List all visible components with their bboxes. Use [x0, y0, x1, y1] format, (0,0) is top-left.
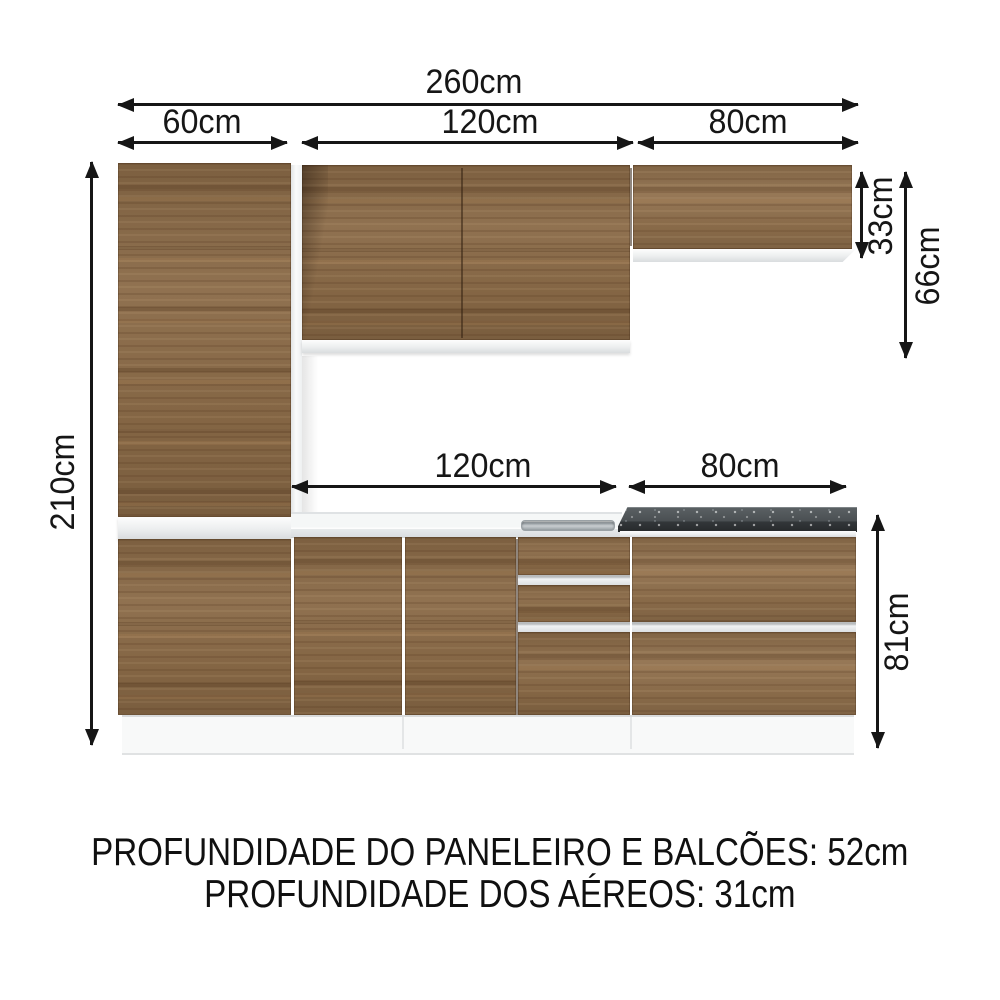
base-right-handle-band [632, 622, 856, 632]
wall-cabinet-gap [630, 168, 632, 246]
dim-label-81: 81cm [880, 593, 914, 672]
dim-label-33: 33cm [864, 177, 898, 256]
drawer-face-3 [518, 632, 630, 715]
tall-cabinet-upper-door [118, 163, 291, 517]
sink-inset [521, 520, 615, 531]
dim-label-66: 66cm [911, 227, 945, 306]
dim-arrow-66 [904, 172, 907, 358]
dim-label-80-top: 80cm [709, 105, 788, 139]
drawer-handle-band-2 [518, 622, 630, 632]
base-right-drawer-top [632, 537, 856, 622]
countertop-granite [618, 507, 857, 532]
dim-arrow-80-mid [629, 485, 846, 488]
plinth-seam-2 [630, 717, 632, 749]
tall-cabinet-lower-door [118, 539, 291, 715]
base-door-1 [294, 537, 402, 715]
plinth [122, 715, 854, 755]
kitchen-dimensions-diagram: 260cm 60cm 120cm 80cm 120cm 80cm 210cm 3… [0, 0, 1000, 1000]
dim-arrow-60 [118, 141, 287, 144]
dim-arrow-80-top [638, 141, 858, 144]
base-right-drawer-bottom [632, 632, 856, 715]
plinth-seam-1 [402, 717, 404, 749]
wall-cabinet-80 [633, 165, 852, 249]
wall-cabinet-80-bottom-shelf [633, 249, 856, 262]
dim-label-80-mid: 80cm [701, 449, 780, 483]
drawer-face-1 [518, 537, 630, 575]
depth-note-line2: PROFUNDIDADE DOS AÉREOS: 31cm [204, 874, 795, 916]
tall-cabinet-middle-band [118, 517, 291, 539]
dim-arrow-120-mid [292, 485, 616, 488]
dim-label-120-top: 120cm [442, 105, 539, 139]
drawer-face-2 [518, 585, 630, 622]
wall-cabinet-120 [302, 165, 630, 340]
base-door-2 [405, 537, 516, 715]
wall-cabinet-120-left-shadow [302, 165, 328, 340]
side-panel-column [291, 165, 302, 517]
dim-label-210: 210cm [46, 434, 80, 531]
wall-cabinet-120-bottom-shelf [302, 340, 630, 353]
dim-label-120-mid: 120cm [435, 449, 532, 483]
depth-note-line1: PROFUNDIDADE DO PANELEIRO E BALCÕES: 52c… [91, 832, 908, 874]
depth-notes: PROFUNDIDADE DO PANELEIRO E BALCÕES: 52c… [0, 832, 1000, 916]
dim-label-total-width: 260cm [426, 65, 523, 99]
dim-label-60: 60cm [163, 105, 242, 139]
drawer-handle-band-1 [518, 575, 630, 585]
dim-arrow-210 [90, 162, 93, 745]
wall-cabinet-120-door-divider [461, 168, 463, 338]
dim-arrow-120-top [302, 141, 633, 144]
